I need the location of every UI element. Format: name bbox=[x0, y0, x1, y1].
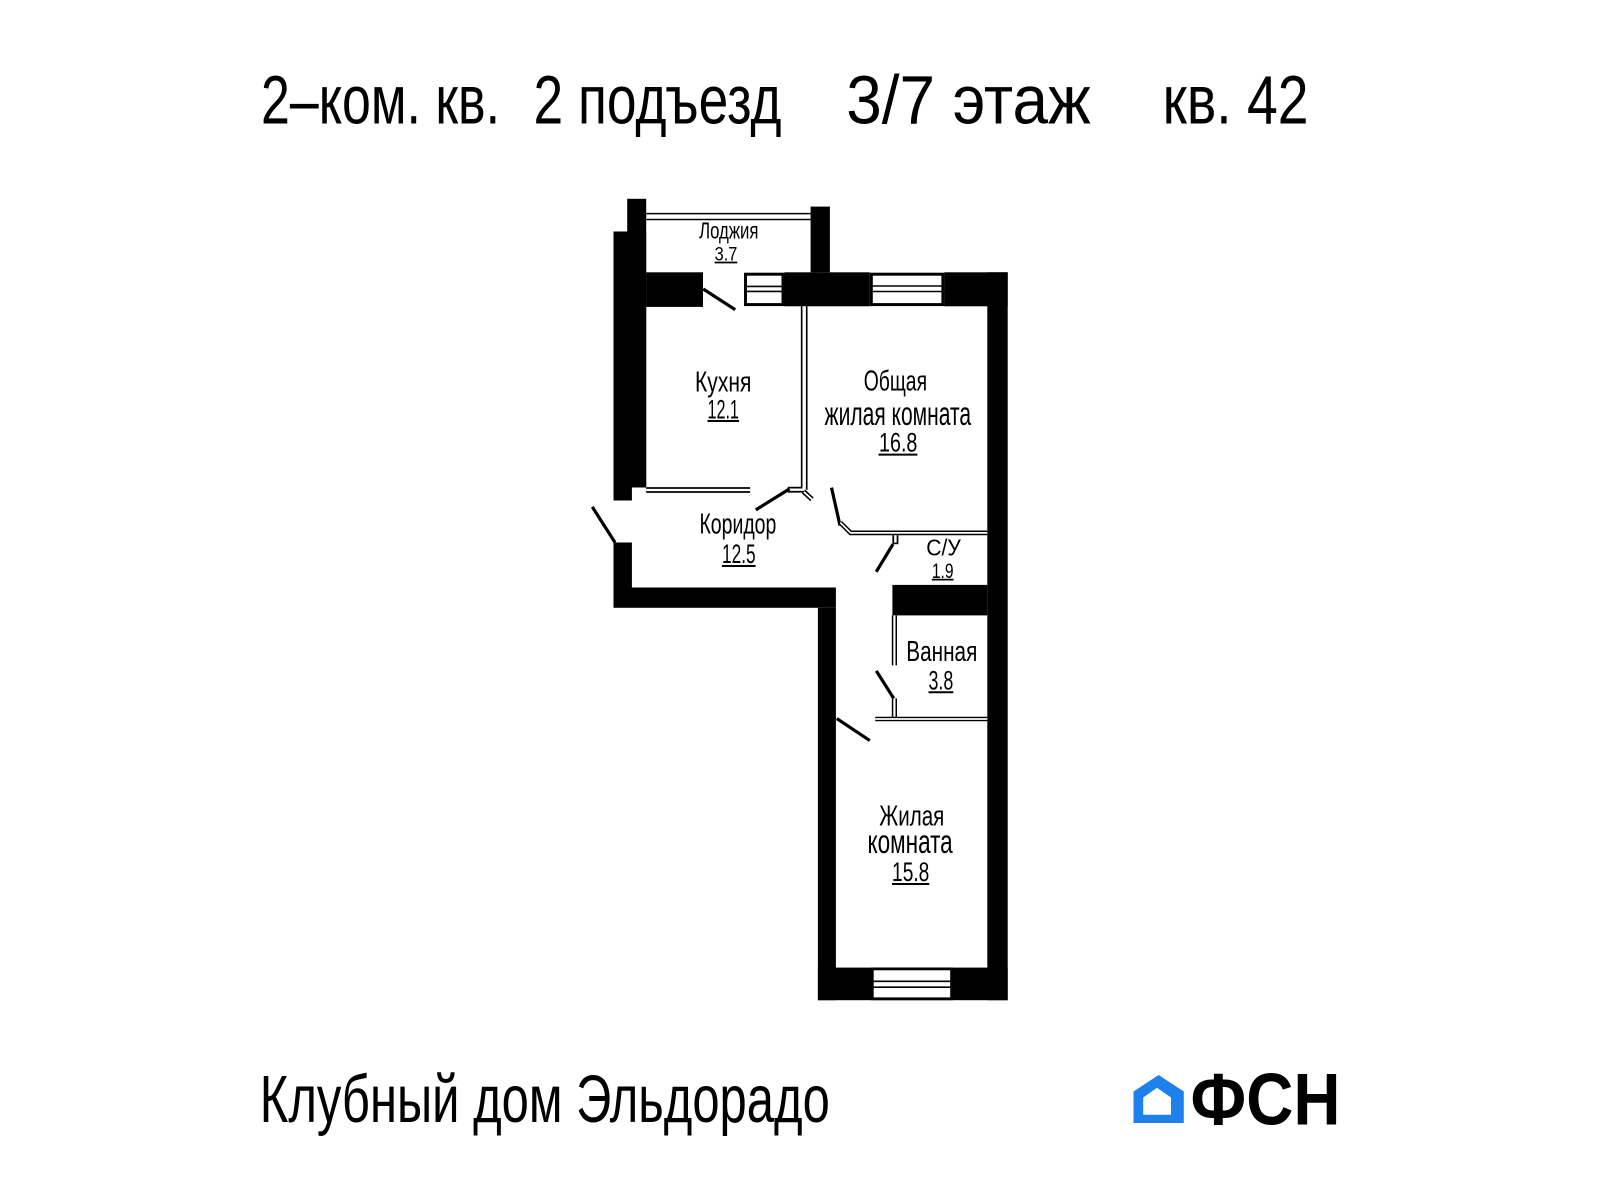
svg-text:12.1: 12.1 bbox=[707, 394, 739, 424]
svg-text:15.8: 15.8 bbox=[892, 857, 929, 887]
svg-text:С/У: С/У bbox=[926, 534, 961, 560]
svg-text:16.8: 16.8 bbox=[879, 427, 917, 457]
svg-text:3.8: 3.8 bbox=[929, 666, 954, 696]
svg-text:комната: комната bbox=[868, 823, 954, 860]
svg-text:ФСН: ФСН bbox=[1191, 1060, 1341, 1141]
svg-text:12.5: 12.5 bbox=[722, 539, 756, 569]
svg-text:Общая: Общая bbox=[864, 366, 927, 398]
svg-text:кв. 42: кв. 42 bbox=[1163, 61, 1309, 138]
svg-text:Коридор: Коридор bbox=[699, 509, 776, 541]
svg-text:Лоджия: Лоджия bbox=[699, 218, 758, 244]
svg-text:Ванная: Ванная bbox=[906, 636, 977, 668]
svg-text:Клубный дом Эльдорадо: Клубный дом Эльдорадо bbox=[260, 1062, 830, 1137]
svg-text:2–ком. кв.: 2–ком. кв. bbox=[261, 61, 500, 138]
svg-text:3/7 этаж: 3/7 этаж bbox=[846, 61, 1090, 138]
svg-text:2 подъезд: 2 подъезд bbox=[534, 61, 782, 138]
